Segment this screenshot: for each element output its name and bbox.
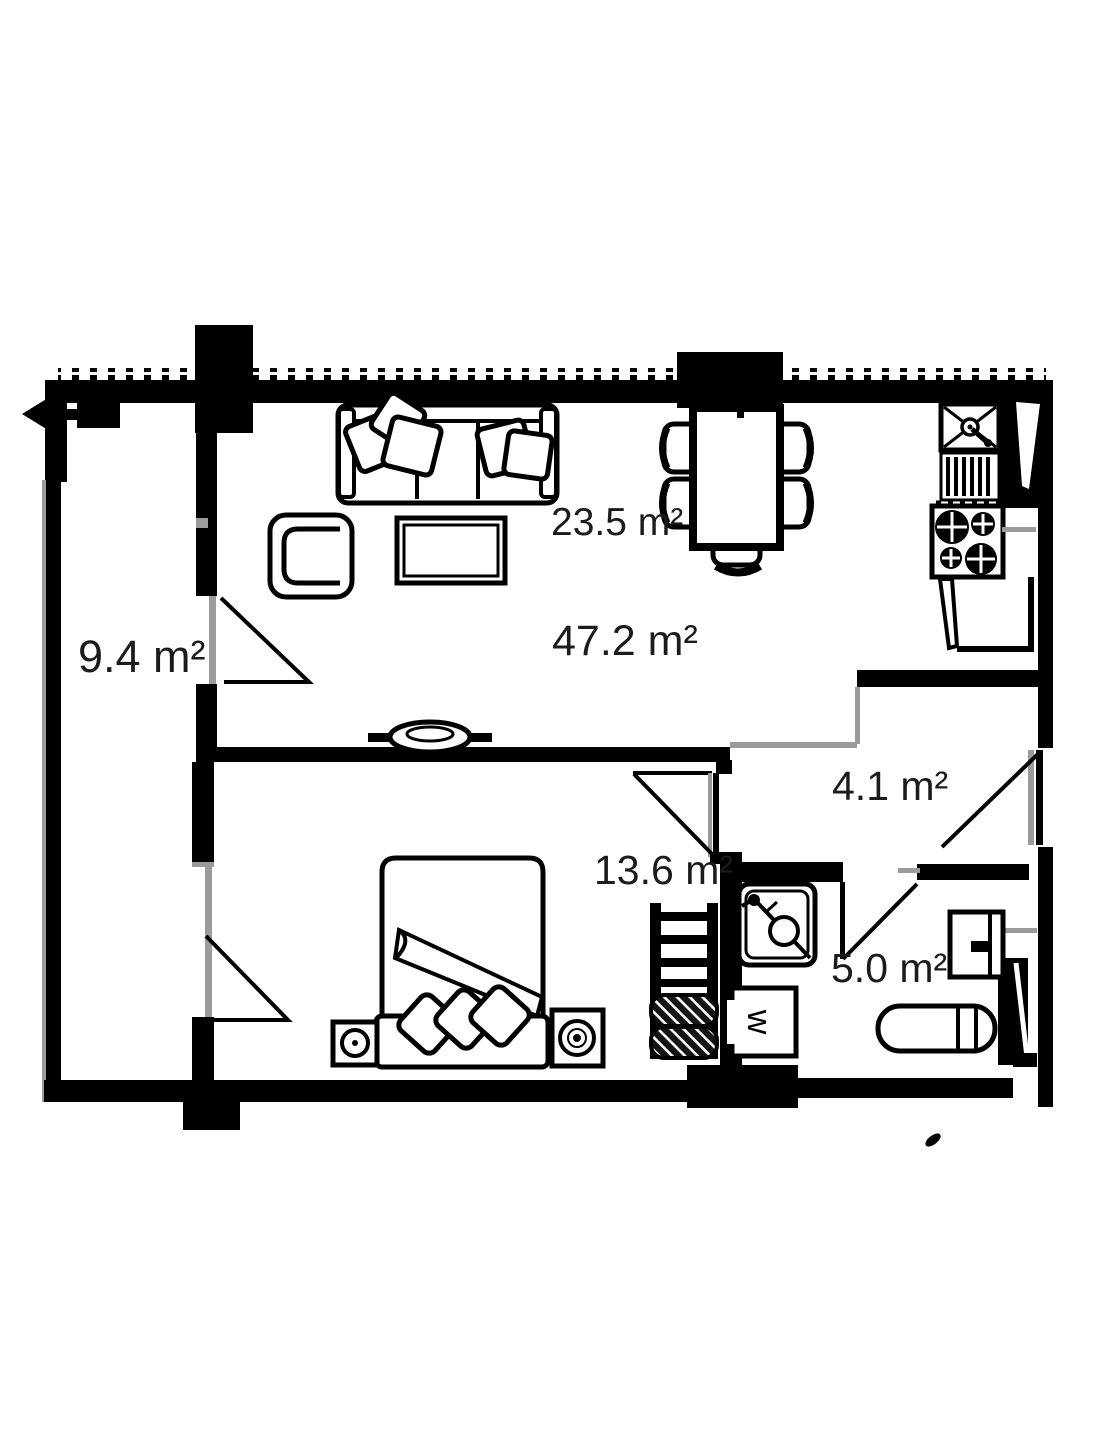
dining-set [663,408,811,573]
washing-machine: w [727,988,796,1056]
door-corridor-living [209,596,309,684]
column [195,325,253,433]
bed [376,858,548,1067]
room-area-label-living: 23.5 m² [551,503,683,542]
room-area-label-total: 47.2 m² [552,620,698,663]
kitchen-sink [941,404,999,450]
floor-plan-drawing: w [0,0,1113,1440]
sofa [338,391,557,503]
room-area-label-bedroom: 13.6 m² [594,850,733,891]
wall-cabinet [950,912,1003,977]
toilet [878,1006,995,1051]
shelf-rack [650,903,718,1059]
column [677,352,783,408]
vent-shaft [999,400,1053,508]
floor-plan: w 9.4 m² 23.5 m² 47.2 m² 13.6 m² 4.1 m² … [0,0,1113,1440]
rolled-bedding [651,995,717,1026]
room-area-label-hallway: 4.1 m² [832,766,948,807]
bathroom-sink [739,884,815,965]
door-entry [942,748,1053,847]
dining-table [693,408,780,547]
door-corridor-bedroom [205,867,288,1020]
stove [932,503,1003,577]
plot-mark [923,1131,943,1149]
room-area-label-corridor: 9.4 m² [78,634,206,679]
coffee-table [397,518,505,583]
dish-drainer [941,453,999,500]
nightstand [333,1022,377,1065]
washer-label: w [740,1009,778,1035]
rolled-bedding [651,1027,717,1058]
nightstand [552,1010,603,1066]
room-area-label-bathroom: 5.0 m² [831,948,947,989]
armchair [270,515,352,597]
